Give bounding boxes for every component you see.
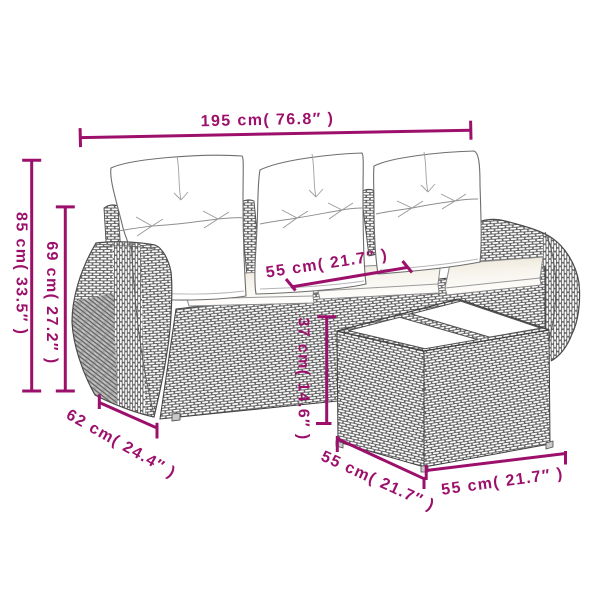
svg-text:37 cm( 14.6″ ): 37 cm( 14.6″ ) — [294, 317, 311, 440]
svg-text:69 cm( 27.2″ ): 69 cm( 27.2″ ) — [43, 241, 60, 364]
svg-text:195 cm( 76.8″ ): 195 cm( 76.8″ ) — [201, 110, 335, 130]
svg-text:85 cm( 33.5″ ): 85 cm( 33.5″ ) — [13, 212, 30, 335]
